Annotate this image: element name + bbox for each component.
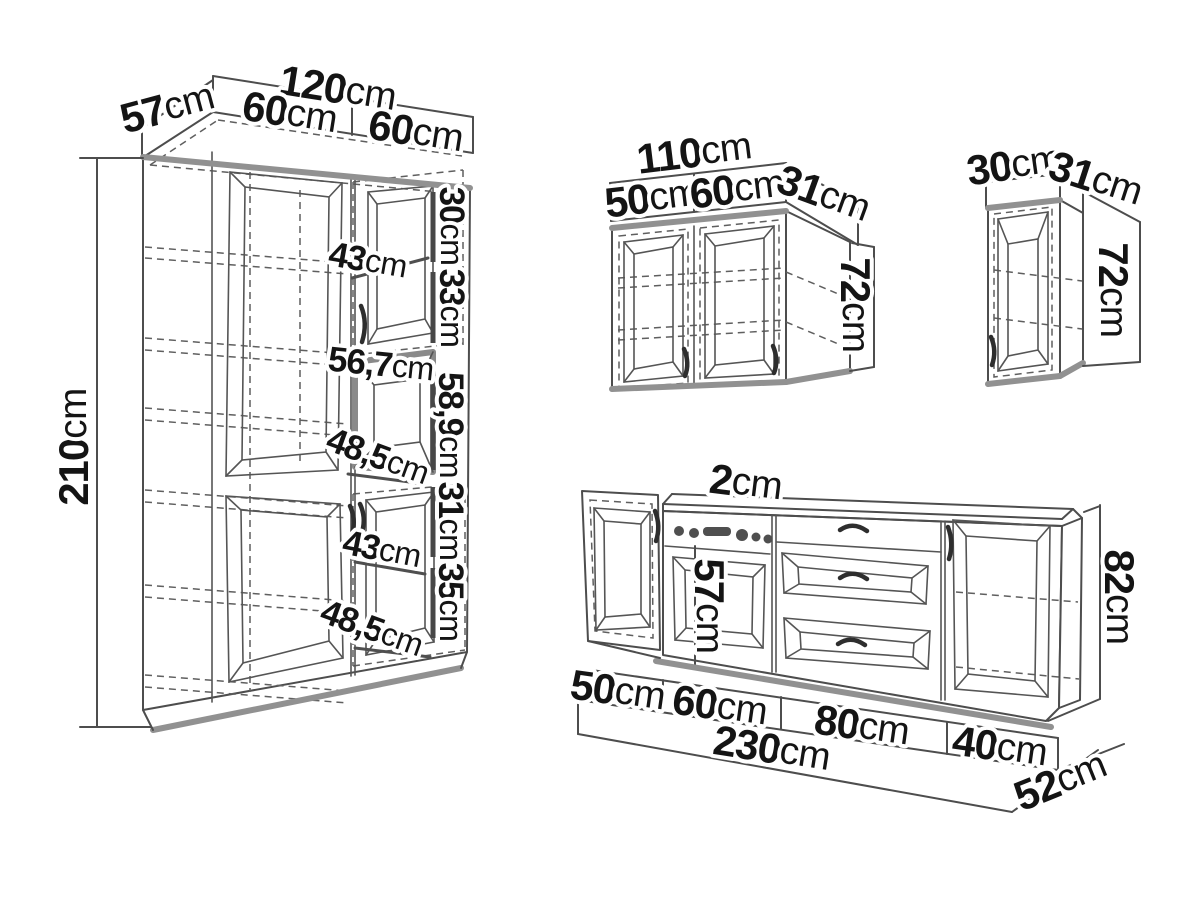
wall-cabinet-front-face [612, 211, 786, 389]
oven-knob-icon [752, 533, 761, 542]
dim-oven-door-height: 57cm [687, 558, 734, 653]
small-cabinet-side-face [1060, 200, 1083, 376]
dim-tall-height: 210cm [50, 388, 97, 506]
dim-tall-lower-section-height: 31cm [432, 482, 471, 561]
oven-knob-icon [736, 529, 748, 541]
dim-wall-height: 72cm [833, 257, 880, 352]
kitchen-cabinet-dimension-diagram: 120cm 57cm 60cm 60cm 210cm 30cm 43cm 33c… [0, 0, 1200, 900]
wall-cabinet-drawing: 110cm 50cm 60cm 31cm 72cm [602, 122, 880, 389]
oven-knob-icon [689, 528, 699, 538]
oven-display-icon [703, 527, 731, 536]
dim-tall-top-door-height: 30cm [433, 187, 472, 266]
tall-cabinet-drawing: 120cm 57cm 60cm 60cm 210cm 30cm 43cm 33c… [50, 56, 474, 730]
dim-tall-right-door-width: 60cm [365, 100, 466, 161]
dim-tall-niche-height: 58,9cm [432, 372, 471, 478]
base-run-drawing: 2cm 57cm 82cm 50cm 60cm 80cm 40cm 230cm … [568, 454, 1144, 819]
dim-small-height: 72cm [1091, 242, 1138, 337]
dim-tall-depth: 57cm [115, 72, 219, 142]
oven-knob-icon [674, 526, 684, 536]
dim-base-section-1: 50cm [568, 660, 669, 720]
small-wall-cabinet-drawing: 30cm 31cm 72cm [964, 134, 1149, 384]
dim-tall-mid-door-height: 33cm [433, 269, 472, 348]
dim-tall-lower-door-height: 35cm [432, 563, 471, 642]
oven-knob-icon [764, 535, 773, 544]
dim-countertop-thickness: 2cm [707, 454, 785, 510]
base-run-left-door-section [582, 491, 660, 650]
dim-base-height: 82cm [1097, 549, 1144, 644]
diagram-canvas: 120cm 57cm 60cm 60cm 210cm 30cm 43cm 33c… [0, 0, 1200, 900]
